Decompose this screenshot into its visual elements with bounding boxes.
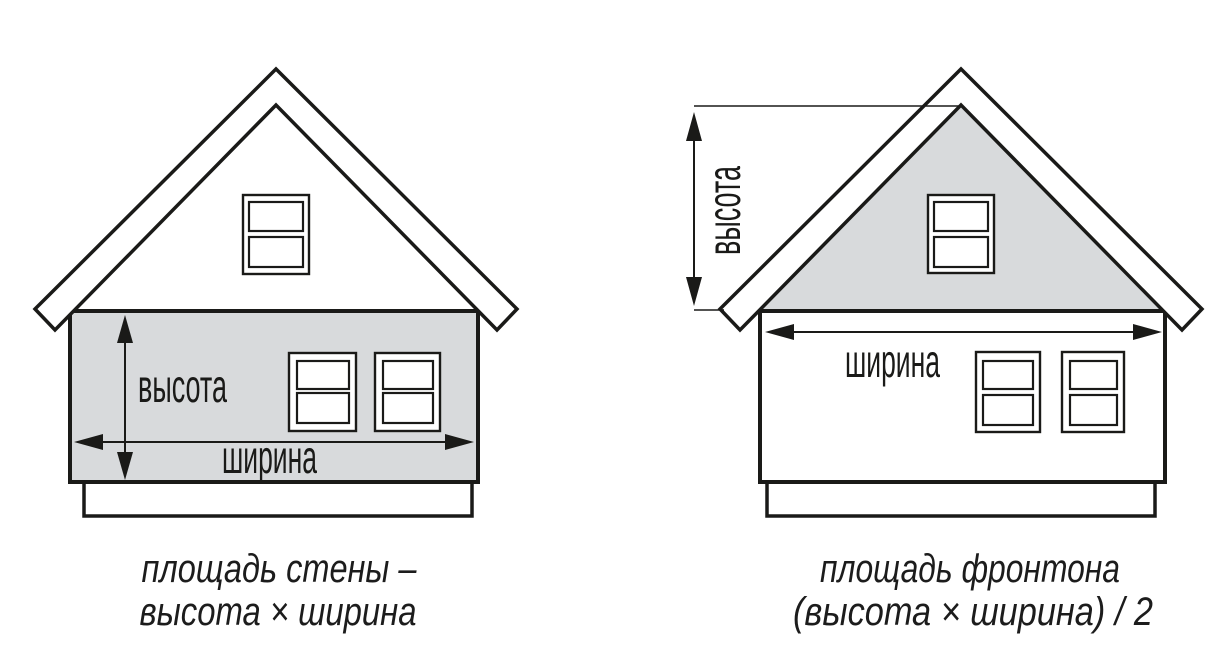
- left-attic-window: [243, 195, 309, 274]
- window-pane: [383, 393, 433, 423]
- left-caption-line2: высота × ширина: [140, 590, 417, 634]
- left-foundation: [84, 482, 472, 516]
- right-width-label: ширина: [845, 335, 940, 387]
- window-pane: [249, 202, 303, 231]
- arrow-down-icon: [686, 277, 702, 306]
- window-pane: [934, 237, 988, 267]
- left-height-label: высота: [138, 360, 227, 412]
- right-height-label: высота: [698, 166, 750, 255]
- window-pane: [297, 361, 349, 389]
- left-wall-window-2: [375, 353, 440, 431]
- window-pane: [1070, 361, 1117, 389]
- right-wall-window-2: [1062, 352, 1124, 432]
- captions: площадь стены – высота × ширина площадь …: [140, 547, 1154, 634]
- right-foundation: [767, 482, 1155, 516]
- right-house: высота ширина: [686, 69, 1202, 516]
- window-pane: [297, 393, 349, 423]
- window-pane: [983, 361, 1033, 389]
- window-pane: [249, 237, 303, 267]
- window-pane: [934, 202, 988, 231]
- arrow-up-icon: [686, 112, 702, 141]
- window-pane: [383, 361, 433, 389]
- left-caption-line1: площадь стены –: [142, 547, 418, 591]
- right-wall-window-1: [976, 352, 1040, 432]
- window-pane: [1070, 395, 1117, 425]
- diagram-canvas: высота ширина: [0, 0, 1218, 654]
- window-pane: [983, 395, 1033, 425]
- left-wall-window-1: [289, 353, 356, 431]
- left-width-label: ширина: [222, 431, 317, 483]
- right-caption-line2: (высота × ширина) / 2: [793, 590, 1153, 634]
- left-house: высота ширина: [35, 69, 517, 516]
- right-caption-line1: площадь фронтона: [820, 547, 1120, 591]
- right-attic-window: [928, 195, 994, 273]
- gable-area-diagram: высота ширина: [0, 0, 1218, 654]
